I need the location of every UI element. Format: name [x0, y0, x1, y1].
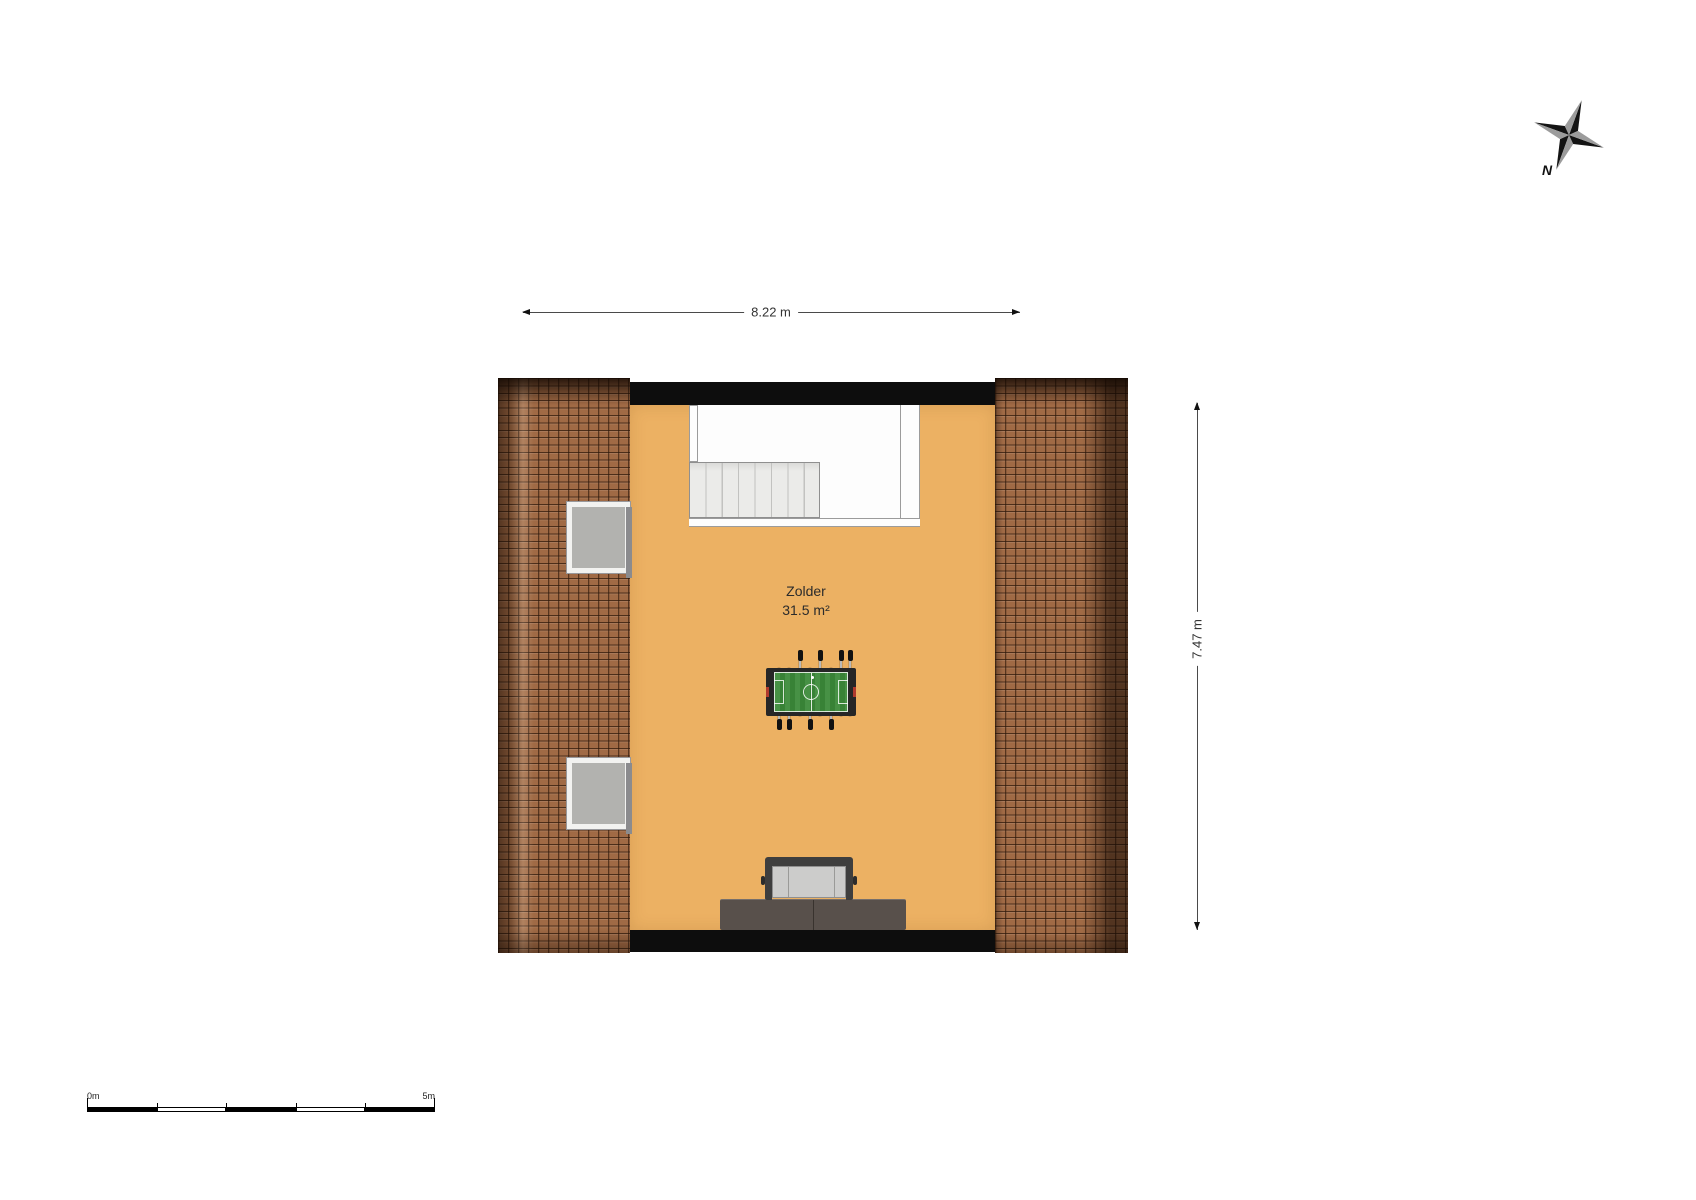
room-label: Zolder 31.5 m²	[782, 582, 829, 620]
foosball-ball	[811, 676, 814, 679]
couch-seam	[834, 867, 835, 897]
stairwell-bottom-wall	[689, 518, 920, 527]
floor-plan: Zolder 31.5 m²	[498, 378, 1128, 953]
scale-start-label: 0m	[87, 1091, 100, 1101]
floorplan-page: N 8.22 m 7.47 m Zolder 31.5 m²	[0, 0, 1696, 1200]
couch-leg-right	[853, 876, 857, 885]
scale-segment	[296, 1107, 366, 1112]
arrow-down-icon	[1194, 922, 1200, 930]
compass-rose-icon	[1524, 87, 1614, 183]
foosball-goal-right	[853, 687, 856, 697]
cabinet-divider	[813, 900, 814, 930]
staircase	[689, 462, 820, 518]
couch-seam	[788, 867, 789, 897]
foosball-handle	[798, 650, 803, 661]
width-dimension-label: 8.22 m	[744, 305, 798, 320]
room-name: Zolder	[782, 582, 829, 601]
arrow-left-icon	[522, 309, 530, 315]
scale-bar-segments	[87, 1107, 435, 1112]
couch-leg-left	[761, 876, 765, 885]
compass-north-label: N	[1542, 162, 1552, 178]
scale-segment	[157, 1107, 227, 1112]
scale-segment	[365, 1107, 435, 1112]
couch	[765, 857, 853, 900]
field-goal-box-left	[774, 680, 784, 704]
stairwell-right-wall	[900, 405, 920, 523]
foosball-goal-left	[766, 687, 769, 697]
scale-segment	[87, 1107, 157, 1112]
room-area: 31.5 m²	[782, 601, 829, 620]
skylight-shadow	[626, 763, 632, 834]
tv-cabinet	[720, 899, 906, 930]
foosball-handle	[848, 650, 853, 661]
foosball-handle	[787, 719, 792, 730]
couch-backrest	[765, 857, 853, 866]
stairwell	[689, 405, 920, 527]
field-goal-box-right	[838, 680, 848, 704]
height-dimension-label: 7.47 m	[1190, 612, 1205, 666]
couch-armrest-right	[846, 863, 853, 900]
wall-bottom	[630, 930, 995, 952]
couch-seat	[772, 866, 846, 898]
arrow-right-icon	[1012, 309, 1020, 315]
foosball-table	[766, 650, 856, 730]
stairwell-left-wall	[689, 405, 698, 462]
skylight-window-1	[567, 502, 630, 573]
height-dimension-line	[1197, 403, 1198, 930]
roof-left	[498, 378, 630, 953]
skylight-shadow	[626, 507, 632, 578]
foosball-field	[774, 672, 848, 712]
roof-right	[995, 378, 1128, 953]
foosball-handle	[839, 650, 844, 661]
wall-top	[630, 382, 995, 405]
couch-armrest-left	[765, 863, 772, 900]
foosball-handle	[777, 719, 782, 730]
skylight-window-2	[567, 758, 630, 829]
foosball-handle	[818, 650, 823, 661]
foosball-handle	[829, 719, 834, 730]
scale-bar: 0m 5m	[87, 1091, 435, 1113]
scale-segment	[226, 1107, 296, 1112]
foosball-handle	[808, 719, 813, 730]
arrow-up-icon	[1194, 402, 1200, 410]
field-center-circle	[803, 684, 819, 700]
